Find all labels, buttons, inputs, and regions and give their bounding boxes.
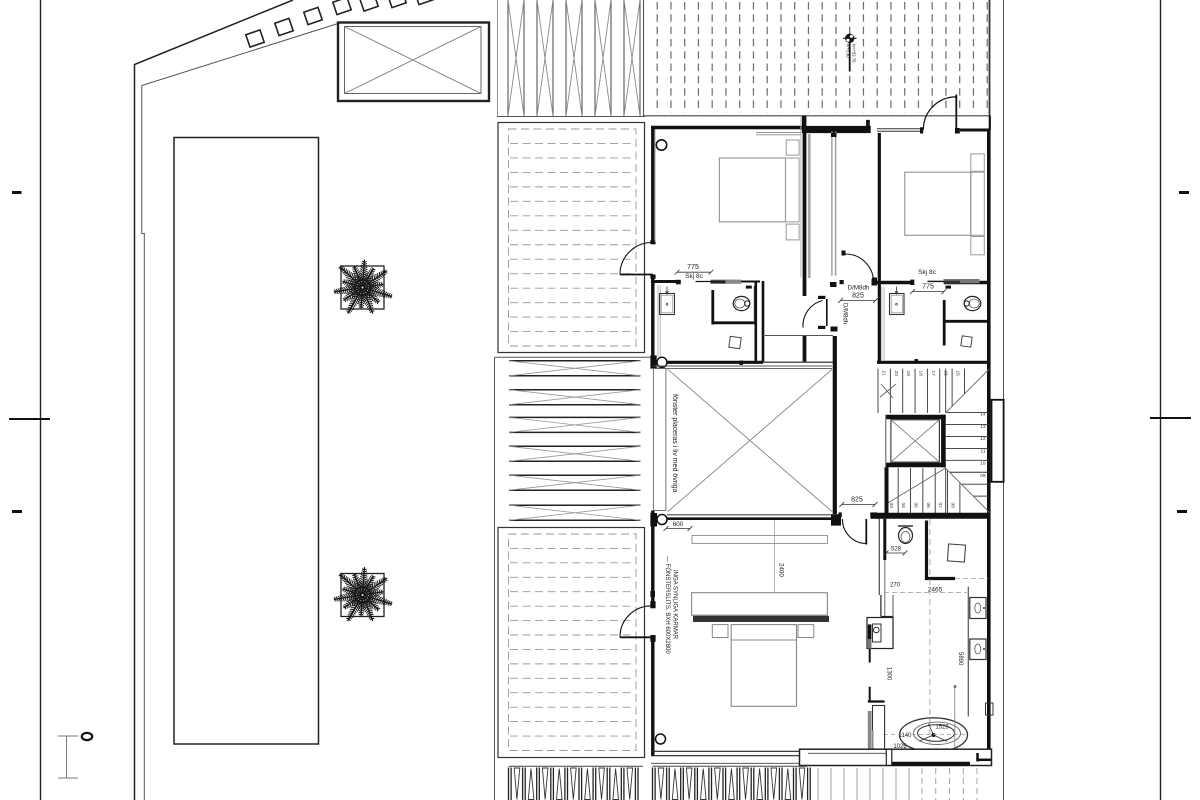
svg-text:06: 06: [925, 503, 931, 509]
svg-text:INGA SYNLIGA KARMAR: INGA SYNLIGA KARMAR: [672, 570, 678, 640]
svg-text:15: 15: [955, 371, 961, 377]
svg-text:825: 825: [851, 497, 863, 504]
svg-text:05: 05: [913, 503, 919, 509]
svg-text:13: 13: [980, 424, 986, 430]
svg-text:2400: 2400: [778, 563, 785, 577]
svg-text:09: 09: [980, 473, 986, 479]
svg-text:19: 19: [905, 371, 911, 377]
svg-text:1300: 1300: [886, 667, 892, 681]
svg-text:11: 11: [981, 448, 986, 454]
svg-text:fönster placeras i liv med övr: fönster placeras i liv med övriga: [671, 394, 678, 493]
svg-text:— FÖNSTERSLITS, BXH 600X2800: — FÖNSTERSLITS, BXH 600X2800: [664, 556, 671, 654]
svg-text:1140: 1140: [899, 733, 913, 739]
svg-text:270: 270: [890, 583, 901, 589]
svg-text:04: 04: [900, 503, 906, 509]
svg-text:Skj 8c: Skj 8c: [685, 273, 703, 280]
svg-text:1525: 1525: [935, 725, 949, 731]
svg-text:D/M8dh: D/M8dh: [848, 285, 870, 292]
svg-text:775: 775: [687, 264, 699, 271]
svg-text:528: 528: [891, 547, 902, 553]
svg-text:08: 08: [950, 503, 956, 509]
svg-text:N+3.30: N+3.30: [846, 44, 851, 58]
svg-text:17: 17: [930, 371, 936, 377]
svg-text:D/M8dh: D/M8dh: [842, 303, 848, 324]
svg-text:5890: 5890: [957, 652, 963, 666]
svg-text:775: 775: [922, 284, 934, 291]
svg-text:07: 07: [937, 503, 943, 509]
svg-text:03: 03: [888, 503, 894, 509]
svg-text:600: 600: [673, 521, 684, 528]
svg-text:825: 825: [852, 293, 864, 300]
svg-text:20: 20: [893, 371, 899, 377]
svg-text:10: 10: [980, 461, 986, 467]
svg-text:12: 12: [980, 436, 986, 442]
svg-text:Skj 8c: Skj 8c: [918, 269, 936, 276]
svg-text:14: 14: [980, 412, 986, 418]
svg-text:N=+52.70: N=+52.70: [852, 44, 857, 63]
svg-text:18: 18: [918, 371, 924, 377]
svg-text:21: 21: [881, 371, 887, 377]
